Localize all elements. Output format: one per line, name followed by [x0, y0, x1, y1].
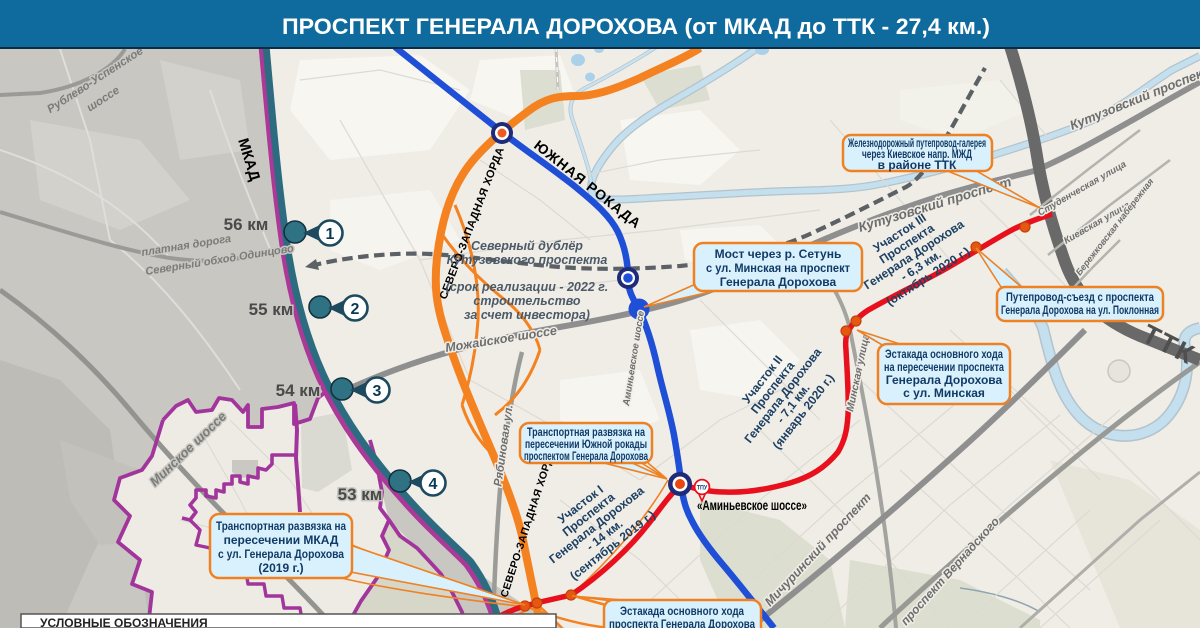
- svg-text:56 км: 56 км: [224, 215, 269, 234]
- svg-text:1: 1: [326, 226, 335, 243]
- svg-text:(2019 г.): (2019 г.): [258, 561, 303, 575]
- svg-text:Транспортная развязка на: Транспортная развязка на: [216, 519, 346, 533]
- svg-text:55 км: 55 км: [249, 300, 294, 319]
- svg-text:с ул. Минская: с ул. Минская: [903, 386, 985, 400]
- svg-text:в районе ТТК: в районе ТТК: [878, 158, 957, 172]
- svg-text:(срок реализации - 2022 г.: (срок реализации - 2022 г.: [446, 280, 609, 294]
- svg-text:«Аминьевское шоссе»: «Аминьевское шоссе»: [697, 497, 807, 513]
- svg-text:на пересечении проспекта: на пересечении проспекта: [884, 360, 1004, 374]
- svg-text:ТПУ: ТПУ: [697, 486, 708, 492]
- svg-text:ПРОСПЕКТ ГЕНЕРАЛА ДОРОХОВА (от: ПРОСПЕКТ ГЕНЕРАЛА ДОРОХОВА (от МКАД до Т…: [282, 14, 990, 39]
- svg-text:Генерала Дорохова: Генерала Дорохова: [886, 373, 1003, 387]
- svg-text:Кутузовского проспекта: Кутузовского проспекта: [447, 253, 608, 267]
- svg-text:с ул. Минская на проспект: с ул. Минская на проспект: [706, 261, 850, 275]
- svg-text:за счет инвестора): за счет инвестора): [464, 308, 590, 322]
- svg-text:Эстакада основного хода: Эстакада основного хода: [885, 347, 1003, 361]
- svg-text:Северный дублёр: Северный дублёр: [471, 239, 583, 253]
- svg-text:УСЛОВНЫЕ ОБОЗНАЧЕНИЯ: УСЛОВНЫЕ ОБОЗНАЧЕНИЯ: [40, 616, 208, 628]
- svg-text:54 км: 54 км: [276, 381, 321, 400]
- svg-text:Эстакада основного хода: Эстакада основного хода: [620, 604, 744, 618]
- svg-text:строительство: строительство: [473, 294, 581, 308]
- svg-text:проспекта Генерала Дорохова: проспекта Генерала Дорохова: [609, 617, 755, 628]
- svg-text:4: 4: [429, 476, 438, 493]
- svg-text:Генерала Дорохова на ул. Покло: Генерала Дорохова на ул. Поклонная: [1001, 303, 1159, 317]
- svg-text:Путепровод-съезд с проспекта: Путепровод-съезд с проспекта: [1006, 290, 1154, 304]
- svg-text:3: 3: [373, 383, 382, 400]
- svg-text:2: 2: [351, 301, 360, 318]
- svg-text:пересечении МКАД: пересечении МКАД: [224, 533, 339, 547]
- svg-text:с ул. Генерала Дорохова: с ул. Генерала Дорохова: [218, 547, 344, 561]
- svg-text:проспектом Генерала Дорохова: проспектом Генерала Дорохова: [524, 449, 648, 463]
- svg-text:53 км: 53 км: [338, 485, 383, 504]
- svg-text:Мост через р. Сетунь: Мост через р. Сетунь: [715, 247, 842, 261]
- svg-text:Генерала Дорохова: Генерала Дорохова: [720, 275, 837, 289]
